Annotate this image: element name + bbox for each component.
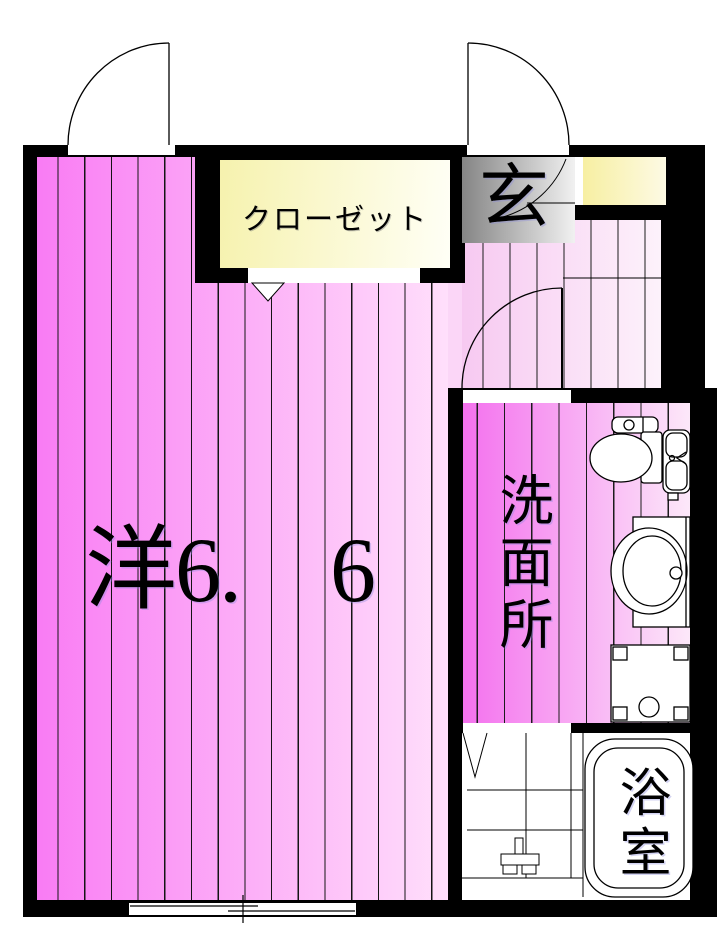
hinged-entrance-door-icon bbox=[468, 43, 569, 145]
sliding-window-icon bbox=[128, 902, 357, 916]
hallway-floor bbox=[462, 220, 661, 388]
washroom-door-opening bbox=[463, 390, 571, 403]
room-label-closet: クローゼット bbox=[220, 196, 450, 238]
floorplan-canvas: 洋6. 6 クローゼット 玄 洗面所 浴室 bbox=[0, 0, 727, 940]
hinged-door-top-left-icon bbox=[68, 43, 169, 145]
bathroom-door-opening bbox=[463, 723, 571, 733]
door-sill-entrance bbox=[467, 145, 569, 155]
room-label-washroom: 洗面所 bbox=[494, 472, 548, 658]
wall-notch bbox=[705, 145, 727, 388]
door-sill-left bbox=[68, 145, 175, 155]
room-label-main: 洋6. 6 bbox=[85, 518, 415, 624]
closet-opening bbox=[248, 268, 420, 283]
main-room-doorway bbox=[448, 283, 462, 388]
room-label-bathroom: 浴室 bbox=[613, 765, 665, 885]
shoe-cabinet bbox=[583, 157, 666, 205]
room-label-entrance: 玄 bbox=[479, 164, 549, 234]
entrance-side-gap bbox=[575, 157, 583, 205]
